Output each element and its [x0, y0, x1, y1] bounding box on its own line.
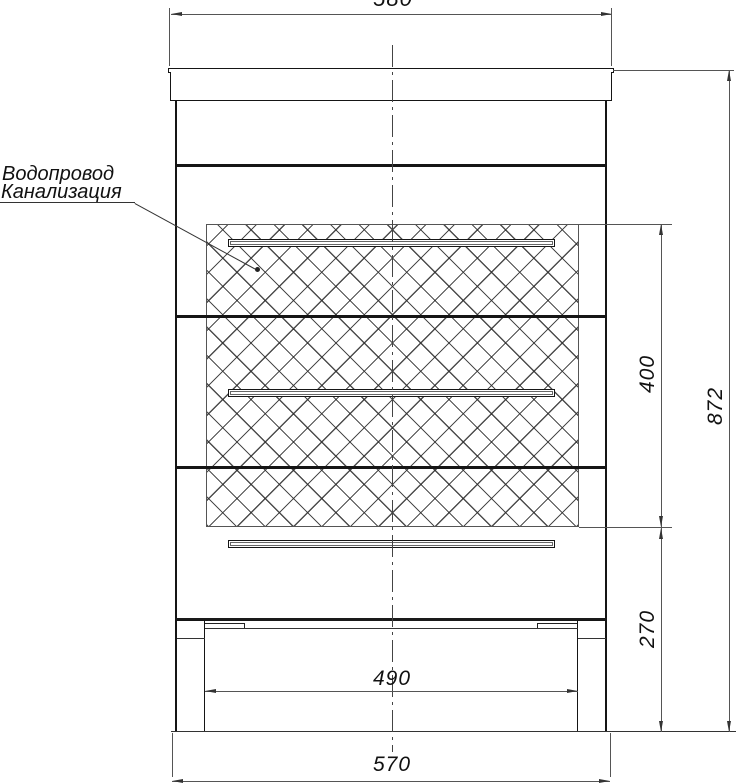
arrow-left-icon [171, 12, 182, 16]
dimension-bottom-zone-value: 270 [636, 599, 660, 659]
dimension-line-top-width [171, 14, 612, 15]
leg-left [175, 620, 205, 732]
drawer-divider-3 [175, 466, 607, 469]
arrow-down-icon [727, 721, 731, 732]
label-underline [0, 202, 135, 203]
arrow-left-icon [172, 779, 183, 783]
dimension-line-plumb-zone [661, 224, 662, 527]
dimension-inner-width-value: 490 [362, 667, 422, 691]
arrow-up-icon [659, 224, 663, 235]
arrow-right-icon [601, 12, 612, 16]
arrow-left-icon [205, 689, 216, 693]
leader-end-dot-icon [255, 267, 260, 272]
arrow-up-icon [659, 528, 663, 539]
dimension-line-base-width [172, 781, 610, 782]
extension-line-base-right [610, 733, 611, 777]
arrow-down-icon [659, 516, 663, 527]
drawer-divider-2 [175, 315, 607, 318]
dimension-line-overall-height [729, 70, 730, 732]
plumbing-label-line2: Канализация [1, 181, 122, 204]
vertical-centerline [392, 45, 393, 752]
arrow-right-icon [599, 779, 610, 783]
floor-line [171, 731, 736, 732]
arrow-right-icon [567, 689, 578, 693]
leg-right [577, 620, 607, 732]
extension-line-height-top [613, 70, 734, 71]
cabinet-bottom-edge [175, 618, 607, 621]
extension-line-top-left [169, 8, 170, 66]
leg-bracket-left [205, 623, 245, 624]
leg-right-inner-line [578, 638, 606, 639]
dimension-line-inner-width [205, 691, 578, 692]
leg-bracket-right [537, 623, 577, 624]
dimension-line-bottom-zone [661, 527, 662, 732]
extension-line-top-right [611, 8, 612, 66]
arrow-up-icon [727, 70, 731, 81]
dimension-plumb-zone-value: 400 [636, 344, 660, 404]
arrow-down-icon [659, 721, 663, 732]
drawer-divider-1 [175, 164, 607, 167]
countertop [170, 72, 612, 101]
dimension-overall-height-value: 872 [704, 376, 728, 436]
technical-drawing-vanity-front-view: 580 Водопровод Канализация 400 270 [0, 0, 736, 784]
leg-left-inner-line [177, 638, 205, 639]
dimension-top-width-value: 580 [363, 0, 423, 12]
extension-line-base-left [172, 733, 173, 777]
dimension-base-width-value: 570 [362, 753, 422, 777]
